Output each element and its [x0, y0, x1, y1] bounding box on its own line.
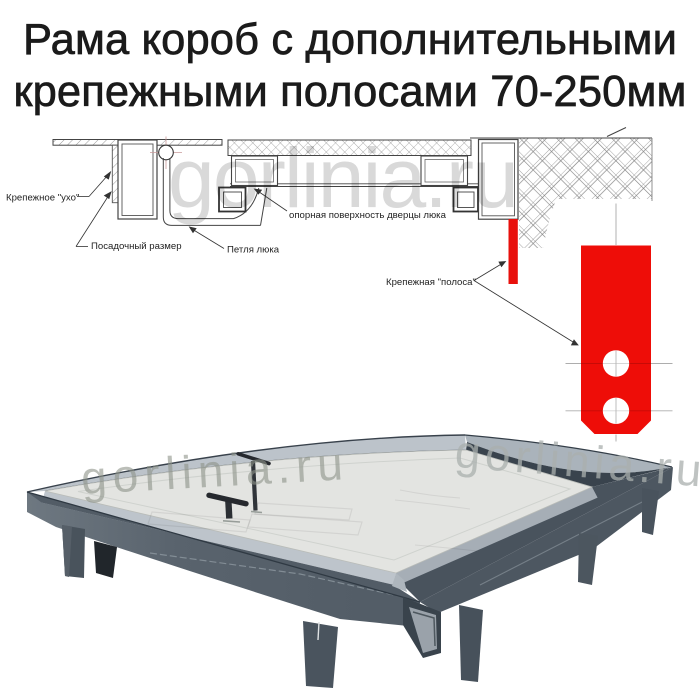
svg-text:опорная поверхность дверцы люк: опорная поверхность дверцы люка [289, 210, 447, 221]
svg-text:Посадочный размер: Посадочный размер [91, 241, 182, 252]
svg-text:Петля люка: Петля люка [227, 245, 280, 256]
svg-text:Крепежное "ухо": Крепежное "ухо" [6, 193, 79, 204]
svg-text:Крепежная "полоса": Крепежная "полоса" [386, 277, 476, 288]
